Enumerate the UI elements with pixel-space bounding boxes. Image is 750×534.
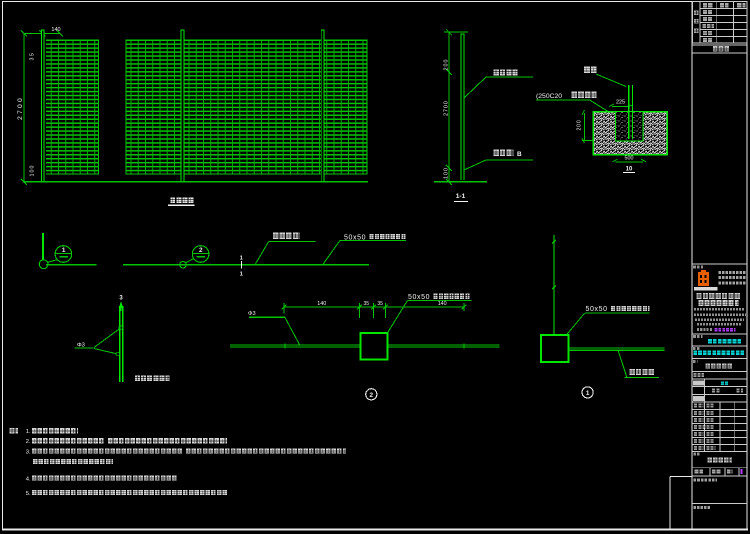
svg-text:1: 1 [62, 247, 66, 254]
svg-text:1: 1 [240, 256, 244, 262]
svg-text:1-1: 1-1 [456, 193, 466, 200]
svg-text:50x50: 50x50 [408, 294, 430, 301]
svg-text:35: 35 [364, 301, 370, 307]
svg-text:(250C20: (250C20 [536, 93, 562, 100]
svg-text:2.: 2. [26, 439, 31, 445]
svg-text:200: 200 [577, 119, 583, 130]
svg-text:50x50: 50x50 [586, 306, 608, 313]
svg-text:35: 35 [377, 301, 383, 307]
svg-text:100: 100 [30, 165, 36, 177]
svg-text:1.: 1. [26, 429, 31, 435]
svg-text:4.: 4. [26, 476, 31, 482]
svg-text:5.: 5. [26, 491, 31, 497]
svg-text:35: 35 [30, 52, 36, 61]
svg-text:2: 2 [199, 247, 203, 254]
svg-text:3.: 3. [26, 449, 31, 455]
svg-text:200: 200 [444, 59, 450, 71]
svg-text:2700: 2700 [444, 100, 450, 116]
svg-text:3: 3 [119, 296, 123, 302]
svg-text:Φ3: Φ3 [248, 311, 256, 317]
svg-text:1: 1 [240, 272, 244, 278]
svg-text:500: 500 [625, 155, 634, 161]
svg-text:10: 10 [626, 167, 633, 173]
svg-text:50x50: 50x50 [344, 234, 366, 241]
svg-text:100: 100 [444, 167, 450, 179]
svg-text:225: 225 [616, 100, 625, 106]
svg-text:2700: 2700 [17, 96, 24, 120]
svg-text:Φ3: Φ3 [77, 343, 85, 349]
svg-text:140: 140 [317, 301, 326, 307]
svg-text:1: 1 [586, 390, 590, 397]
svg-text:140: 140 [51, 27, 60, 33]
svg-text:B: B [517, 151, 522, 158]
svg-text:2: 2 [370, 392, 374, 399]
svg-text:140: 140 [438, 301, 447, 307]
